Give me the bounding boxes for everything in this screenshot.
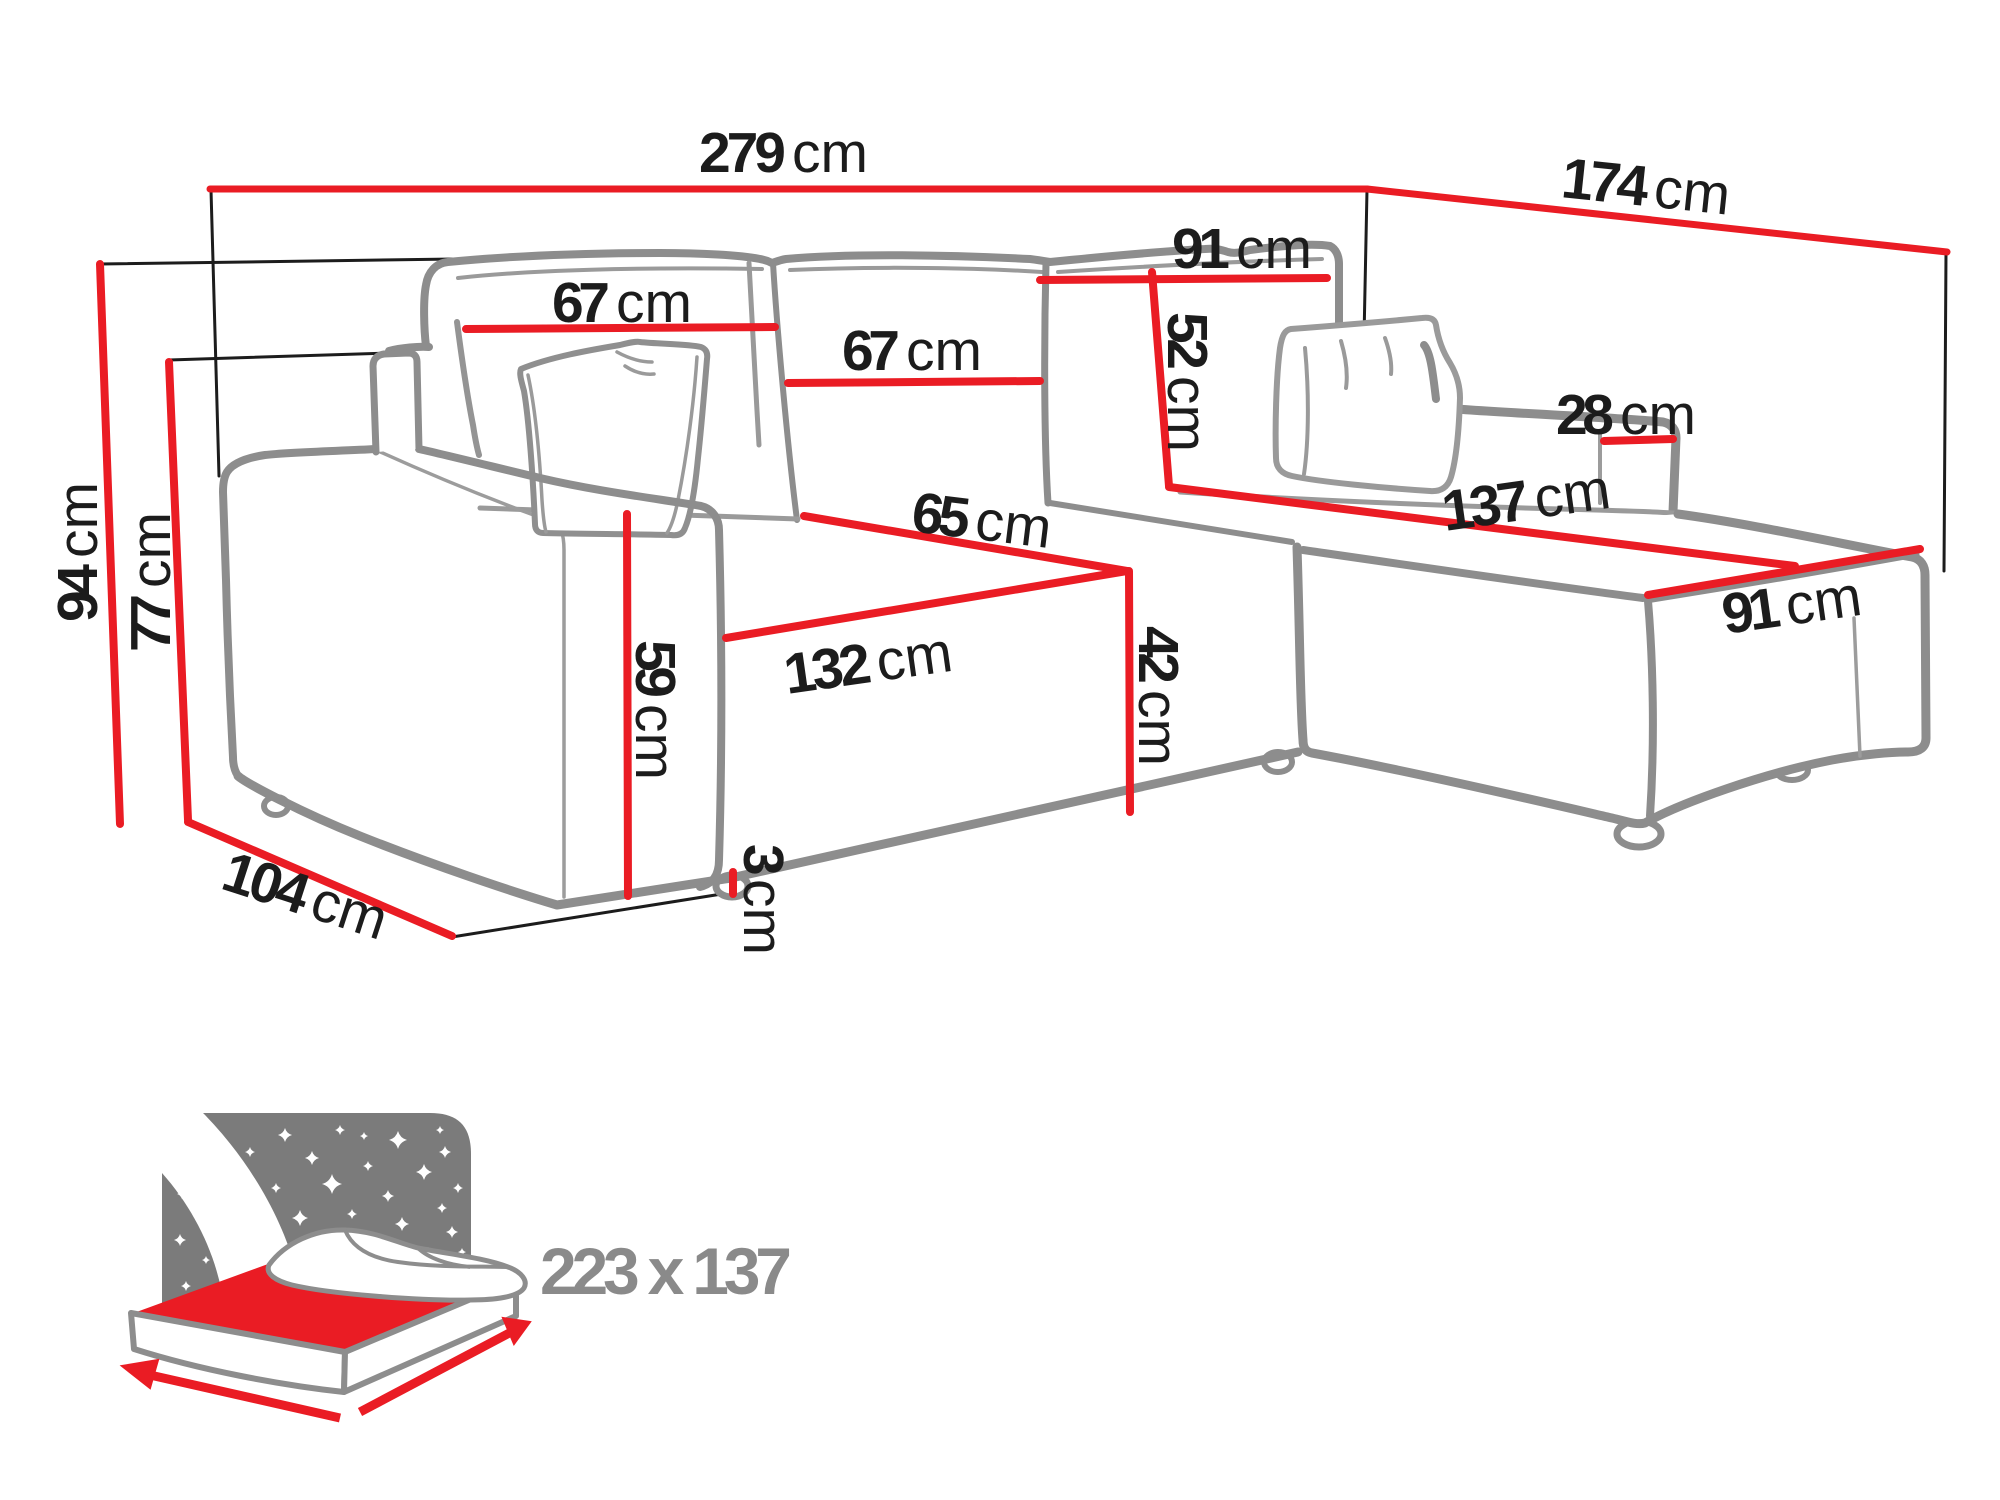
svg-text:cm: cm: [731, 879, 795, 955]
svg-text:cm: cm: [1236, 217, 1312, 281]
svg-text:59: 59: [623, 640, 687, 698]
svg-text:cm: cm: [1620, 383, 1696, 447]
svg-text:cm: cm: [1781, 564, 1865, 638]
svg-text:67: 67: [552, 271, 610, 335]
svg-text:cm: cm: [46, 482, 110, 558]
svg-text:77: 77: [119, 594, 183, 652]
svg-text:cm: cm: [872, 620, 956, 694]
svg-text:cm: cm: [792, 121, 868, 185]
svg-text:cm: cm: [623, 704, 687, 780]
svg-text:137: 137: [1438, 468, 1533, 543]
svg-text:cm: cm: [1530, 457, 1614, 531]
svg-text:28: 28: [1556, 383, 1614, 447]
svg-text:42: 42: [1126, 626, 1190, 684]
svg-text:cm: cm: [906, 319, 982, 383]
svg-text:91: 91: [1718, 575, 1784, 646]
svg-text:3: 3: [731, 844, 795, 876]
svg-text:cm: cm: [1651, 156, 1733, 228]
svg-text:174: 174: [1559, 146, 1653, 219]
svg-text:cm: cm: [616, 271, 692, 335]
svg-text:67: 67: [842, 319, 900, 383]
svg-text:65: 65: [908, 480, 973, 551]
svg-text:91: 91: [1172, 217, 1230, 281]
svg-text:223 x 137: 223 x 137: [540, 1234, 792, 1308]
svg-text:cm: cm: [1155, 376, 1219, 452]
svg-text:52: 52: [1155, 312, 1219, 370]
svg-text:cm: cm: [119, 512, 183, 588]
svg-text:132: 132: [780, 631, 875, 706]
svg-text:94: 94: [46, 564, 110, 622]
svg-text:279: 279: [699, 121, 786, 185]
svg-text:cm: cm: [972, 488, 1055, 561]
svg-text:cm: cm: [1126, 690, 1190, 766]
